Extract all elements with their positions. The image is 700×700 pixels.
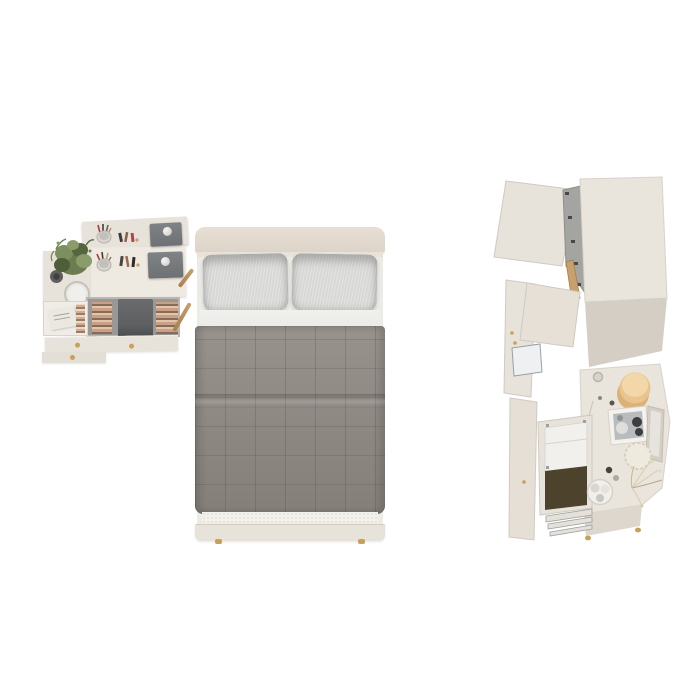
bed [195,227,385,545]
comforter-fold [195,394,385,408]
perfume-bottle [613,475,619,481]
panel-knob [522,480,526,484]
dresser-foot [635,528,641,533]
jewelry-tray [588,480,613,505]
wardrobe-side-face [585,298,667,367]
drawer-knob [129,344,134,349]
wardrobe-dresser-assembly [492,170,682,555]
small-item [598,396,602,400]
gray-box-hutch [149,222,182,247]
panel-knob [510,331,514,335]
storage-box [47,306,77,330]
perfume-bottle [606,467,612,473]
bed-foot-right [358,539,365,544]
small-item [610,401,615,406]
quilted-comforter [195,326,385,514]
desk-chair [118,299,153,337]
wardrobe-top-face [580,177,667,302]
olive-garment [545,466,587,510]
mini-books [76,304,85,333]
desk-drawer-front [45,335,178,353]
dressing-table [38,203,203,368]
drawer-knob [75,343,80,348]
under-desk-shelf [86,297,180,337]
bed-headboard [195,227,385,253]
dresser-foot [585,536,591,541]
book-stack-left [92,302,112,334]
potted-plant [46,231,98,285]
pillow-left [202,253,288,313]
wardrobe-door-open-middle [520,283,580,347]
drawer-knob [70,355,75,360]
pillow-right [292,253,378,312]
side-panel-lower [509,398,537,540]
makeup-items-desk [118,253,144,269]
bed-footboard [195,524,385,541]
makeup-items-hutch [116,229,142,245]
desk-open-drawer [43,301,88,336]
metal-ring [594,373,603,382]
round-knob [161,257,170,266]
interior-shelf [512,344,542,376]
gray-box-desk [148,251,184,278]
folded-linens [545,422,587,473]
photo-frame [608,406,649,445]
bed-foot-left [215,539,222,544]
round-knob [163,227,172,236]
desk-lower-drawer [42,352,106,363]
panel-knob [513,341,517,345]
